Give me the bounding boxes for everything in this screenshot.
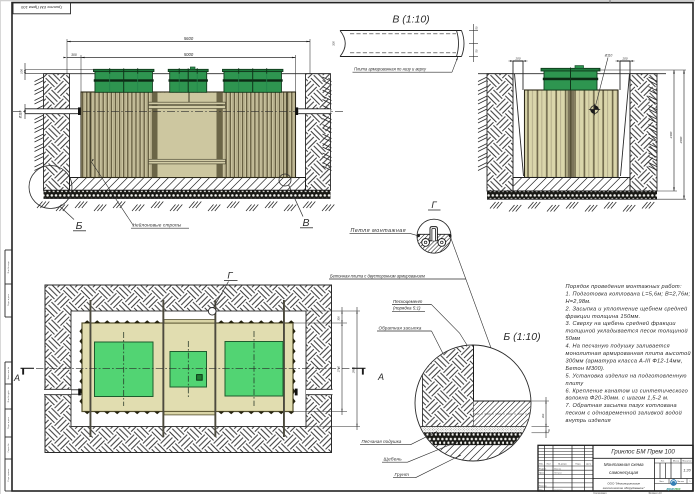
svg-text:4. На песчаную подушку заливае: 4. На песчаную подушку заливается (566, 344, 670, 350)
svg-text:200: 200 (621, 56, 627, 60)
svg-text:Гринлос БМ Прем 100: Гринлос БМ Прем 100 (20, 5, 62, 10)
svg-text:5600: 5600 (184, 36, 194, 41)
svg-text:Сидоров: Сидоров (554, 489, 563, 492)
svg-text:2980: 2980 (679, 136, 683, 144)
svg-text:В (1:10): В (1:10) (392, 14, 429, 26)
svg-text:Грунт: Грунт (395, 472, 410, 477)
svg-text:1:20: 1:20 (683, 469, 691, 473)
svg-text:300: 300 (541, 413, 545, 418)
svg-text:1. Подготовка котлована L=5,6м: 1. Подготовка котлована L=5,6м; В=2,76м; (566, 291, 691, 297)
svg-text:Разраб.: Разраб. (539, 469, 547, 471)
svg-text:плиту: плиту (566, 381, 585, 387)
svg-text:(порядка 5:1): (порядка 5:1) (393, 306, 421, 311)
svg-text:300: 300 (337, 316, 341, 321)
svg-text:Н=2,98м.: Н=2,98м. (566, 299, 592, 305)
svg-text:экологическое оборудование": экологическое оборудование" (603, 486, 646, 490)
svg-text:Н.контр.: Н.контр. (539, 485, 547, 487)
svg-text:Утв.: Утв. (539, 490, 543, 492)
svg-text:волокна Ф20-30мм. с шагом 1,5-: волокна Ф20-30мм. с шагом 1,5-2 м. (566, 396, 669, 402)
svg-text:Монтажная схема: Монтажная схема (604, 462, 644, 467)
svg-text:Изм.: Изм. (539, 463, 544, 465)
svg-text:Подп. и дата: Подп. и дата (8, 416, 10, 429)
svg-text:Перв. примен.: Перв. примен. (8, 468, 10, 482)
svg-text:Ø110: Ø110 (19, 110, 23, 119)
svg-text:внутрь изделия: внутрь изделия (566, 418, 611, 424)
svg-text:Масштаб: Масштаб (683, 461, 693, 463)
svg-text:Подп. и дата: Подп. и дата (8, 293, 10, 306)
svg-text:6. Крепление канатом из синтет: 6. Крепление канатом из синтетического (566, 388, 689, 394)
svg-text:Пескоцемент: Пескоцемент (393, 299, 423, 304)
svg-text:Листов: Листов (677, 481, 685, 483)
svg-text:Подп.: Подп. (575, 463, 581, 465)
svg-text:Щебень: Щебень (384, 457, 403, 462)
svg-text:Иванов: Иванов (554, 469, 562, 471)
svg-text:№ докум.: № докум. (558, 462, 568, 465)
svg-text:Справ. №: Справ. № (7, 443, 10, 453)
svg-text:Песчаная подушка: Песчаная подушка (362, 439, 402, 444)
svg-text:Лит.: Лит. (661, 461, 665, 463)
svg-text:Порядок проведения монтажных р: Порядок проведения монтажных работ: (566, 284, 682, 290)
svg-text:300мм (арматура класса А-III Ф: 300мм (арматура класса А-III Ф12-14мм, (566, 359, 683, 365)
svg-text:200: 200 (514, 56, 520, 60)
svg-text:5. Установка изделия на подгот: 5. Установка изделия на подготовленную (566, 373, 688, 379)
svg-text:монолитная армированная плита: монолитная армированная плита высотой (566, 350, 691, 357)
svg-text:2760: 2760 (337, 365, 341, 373)
svg-text:Плита армированная по низу и в: Плита армированная по низу и верху (354, 67, 427, 72)
svg-text:фракции толщина 150мм.: фракции толщина 150мм. (566, 314, 641, 320)
svg-text:А: А (13, 373, 20, 383)
svg-text:ООО "Инжиниринговое: ООО "Инжиниринговое (607, 481, 640, 485)
svg-text:50мм: 50мм (566, 336, 581, 342)
svg-text:Бетонная плита с двусторонним: Бетонная плита с двусторонним армировани… (330, 273, 425, 278)
svg-text:300: 300 (332, 41, 336, 46)
svg-text:Петров: Петров (554, 473, 563, 475)
svg-text:самонесущая: самонесущая (609, 470, 639, 475)
svg-text:Б (1:10): Б (1:10) (503, 331, 540, 343)
svg-text:А: А (377, 372, 384, 382)
svg-text:В: В (302, 217, 309, 229)
svg-text:Б: Б (76, 220, 83, 232)
svg-text:толщиной укладывается песок то: толщиной укладывается песок толщиной (566, 328, 688, 335)
svg-text:Бетон М300).: Бетон М300). (566, 366, 605, 372)
svg-text:2. Засыпка и уплотнение щебнем: 2. Засыпка и уплотнение щебнем средней (565, 305, 688, 312)
svg-text:100: 100 (19, 69, 23, 74)
svg-text:5000: 5000 (184, 52, 194, 57)
svg-text:Взам. инв. №: Взам. инв. № (7, 366, 10, 379)
svg-text:гринлос: гринлос (666, 487, 680, 491)
svg-text:7. Обратная засыпка пазух котл: 7. Обратная засыпка пазух котлована (566, 403, 677, 409)
svg-text:Обратная засыпка: Обратная засыпка (379, 325, 422, 330)
svg-text:Инв. № подл.: Инв. № подл. (7, 260, 10, 273)
svg-text:3. Сверху на щебень средней фр: 3. Сверху на щебень средней фракции (566, 320, 676, 327)
svg-text:Инв. № дубл.: Инв. № дубл. (7, 389, 10, 402)
svg-text:Г: Г (227, 271, 233, 282)
svg-text:Лист: Лист (546, 463, 551, 465)
svg-text:Лист: Лист (659, 481, 664, 483)
svg-text:Нейлоновые стропы: Нейлоновые стропы (133, 222, 182, 228)
svg-text:песком с одновременной заливко: песком с одновременной заливкой водой (566, 410, 682, 417)
svg-text:2980: 2980 (351, 366, 355, 374)
svg-text:Гринлос БМ Прем 100: Гринлос БМ Прем 100 (611, 449, 675, 456)
svg-text:Масса: Масса (673, 461, 680, 463)
svg-text:2380: 2380 (669, 131, 673, 139)
svg-text:Г: Г (431, 200, 437, 211)
svg-text:Ø110: Ø110 (604, 54, 613, 58)
svg-text:Пров.: Пров. (539, 473, 545, 475)
svg-text:300: 300 (71, 53, 77, 57)
